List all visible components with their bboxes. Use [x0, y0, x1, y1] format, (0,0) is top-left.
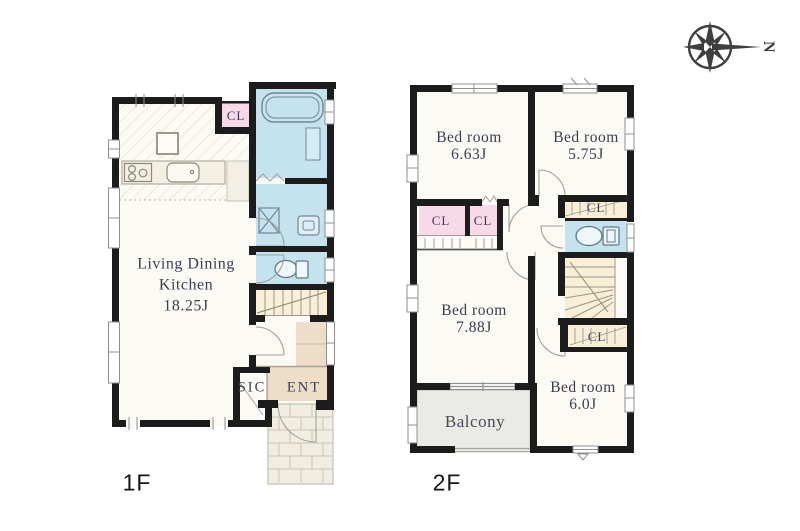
sic-label: SIC [238, 380, 267, 397]
closet-label-1f: CL [227, 108, 246, 124]
balcony-label: Balcony [445, 412, 505, 432]
floor-label-1f: 1F [123, 470, 152, 497]
room-label-bedroom-ne: Bed room 5.75J [553, 129, 619, 163]
toilet-icon-2f [576, 227, 619, 246]
ldk-size: 18.25J [137, 296, 235, 317]
kitchen-table [157, 133, 178, 154]
closet-label-2f-ne: CL [587, 200, 606, 216]
washroom [256, 184, 327, 246]
bedroom-nw-name: Bed room [436, 129, 502, 146]
room-label-bedroom-sw: Bed room 7.88J [441, 302, 507, 336]
bedroom-sw-name: Bed room [441, 302, 507, 319]
porch [268, 404, 333, 484]
floor-plan-page: Living Dining Kitchen 18.25J CL SIC ENT … [0, 0, 800, 531]
room-label-ldk: Living Dining Kitchen 18.25J [137, 254, 235, 317]
closet-label-2f-right: CL [474, 213, 493, 229]
kitchen-sink-icon [167, 163, 199, 182]
ent-label: ENT [287, 380, 321, 397]
room-label-bedroom-nw: Bed room 6.63J [436, 129, 502, 163]
vanity-icon [298, 216, 319, 235]
bedroom-sw-size: 7.88J [441, 319, 507, 336]
bedroom-se-name: Bed room [550, 379, 616, 396]
closet-label-2f-left: CL [432, 213, 451, 229]
ldk-line2: Kitchen [137, 275, 235, 296]
bedroom-se-size: 6.0J [550, 396, 616, 413]
bedroom-ne-size: 5.75J [553, 146, 619, 163]
bedroom-ne-name: Bed room [553, 129, 619, 146]
closet-label-2f-se: CL [588, 329, 607, 345]
north-arrow [712, 44, 761, 51]
bath-counter [306, 128, 320, 160]
room-label-bedroom-se: Bed room 6.0J [550, 379, 616, 413]
floor-label-2f: 2F [433, 470, 462, 497]
bedroom-nw-size: 6.63J [436, 146, 502, 163]
north-label: N [759, 41, 777, 53]
ldk-line1: Living Dining [137, 254, 235, 275]
